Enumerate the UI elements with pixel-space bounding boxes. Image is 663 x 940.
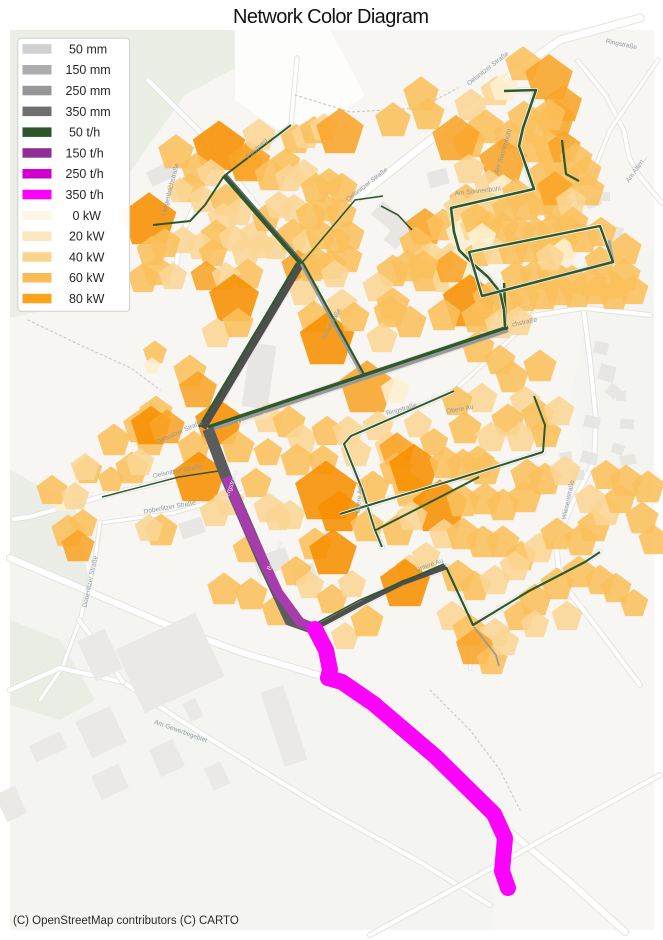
svg-text:50 mm: 50 mm (66, 42, 108, 56)
svg-text:250 t/h: 250 t/h (66, 167, 104, 181)
svg-text:(C) OpenStreetMap contributors: (C) OpenStreetMap contributors (C) CARTO (13, 915, 239, 927)
svg-text:60 kW: 60 kW (66, 271, 105, 285)
svg-text:250 mm: 250 mm (66, 84, 111, 98)
svg-text:40 kW: 40 kW (66, 250, 105, 264)
svg-text:150 t/h: 150 t/h (66, 146, 104, 160)
svg-text:80 kW: 80 kW (66, 292, 105, 306)
svg-text:20 kW: 20 kW (66, 230, 105, 244)
svg-text:350 t/h: 350 t/h (66, 188, 104, 202)
svg-text:0 kW: 0 kW (66, 209, 102, 223)
svg-text:Network Color Diagram: Network Color Diagram (233, 6, 429, 28)
svg-text:150 mm: 150 mm (66, 63, 111, 77)
svg-text:350 mm: 350 mm (66, 105, 111, 119)
svg-text:50 t/h: 50 t/h (66, 126, 101, 140)
